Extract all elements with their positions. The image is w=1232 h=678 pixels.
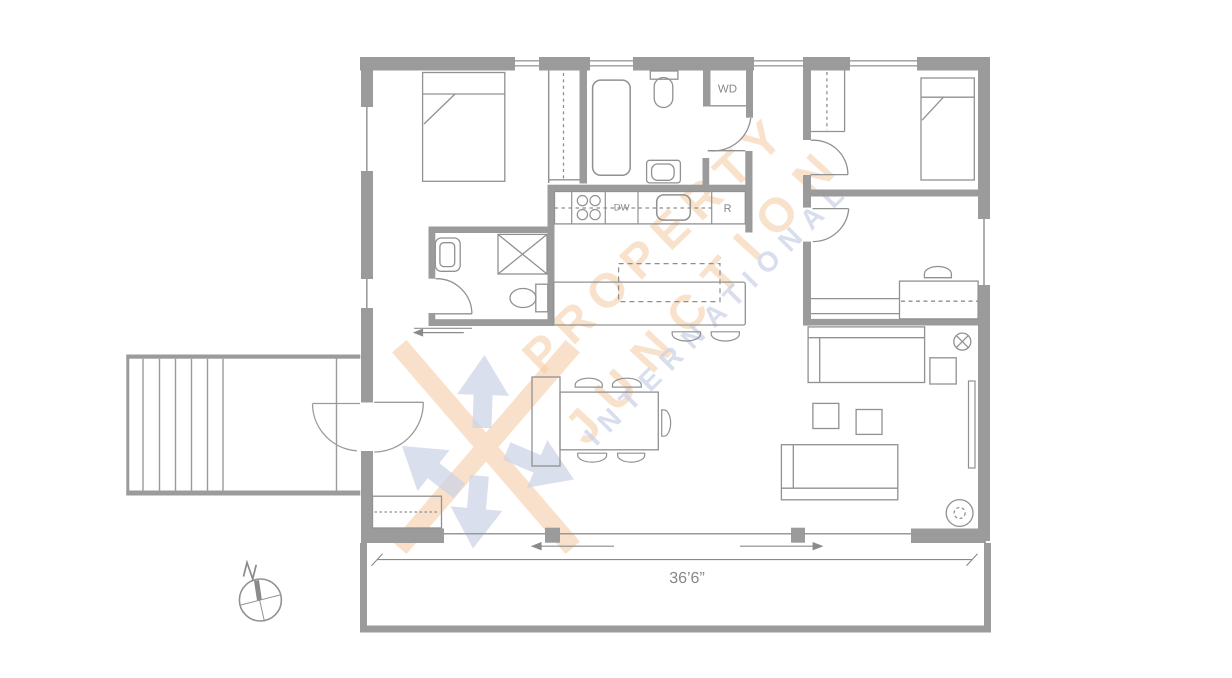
svg-text:WD: WD [718,84,737,96]
svg-text:36’6”: 36’6” [669,570,705,587]
svg-text:R: R [724,203,732,215]
svg-text:DW: DW [614,203,630,214]
